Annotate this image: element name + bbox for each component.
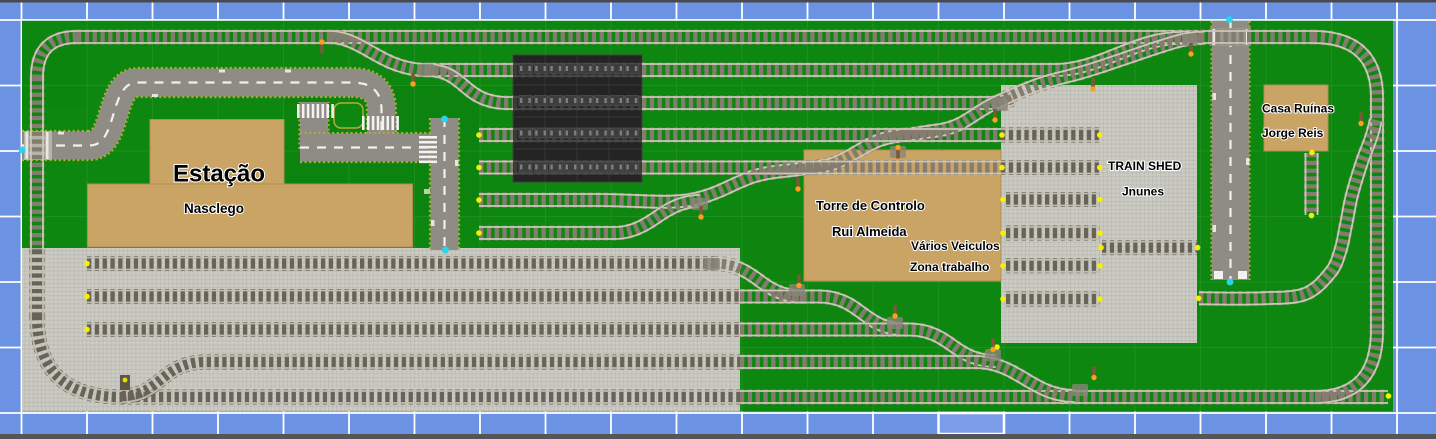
svg-text:Torre de Controlo: Torre de Controlo	[816, 198, 925, 213]
svg-text:Jorge Reis: Jorge Reis	[1262, 126, 1324, 140]
svg-text:Jnunes: Jnunes	[1122, 185, 1164, 199]
svg-text:Vários Veiculos: Vários Veiculos	[911, 239, 1000, 253]
svg-text:TRAIN SHED: TRAIN SHED	[1108, 159, 1182, 173]
svg-text:Nasclego: Nasclego	[184, 201, 244, 216]
svg-text:Estação: Estação	[173, 161, 265, 188]
svg-text:Rui Almeida: Rui Almeida	[832, 224, 907, 239]
svg-text:Zona trabalho: Zona trabalho	[910, 260, 989, 274]
svg-text:Casa Ruínas: Casa Ruínas	[1262, 102, 1334, 116]
